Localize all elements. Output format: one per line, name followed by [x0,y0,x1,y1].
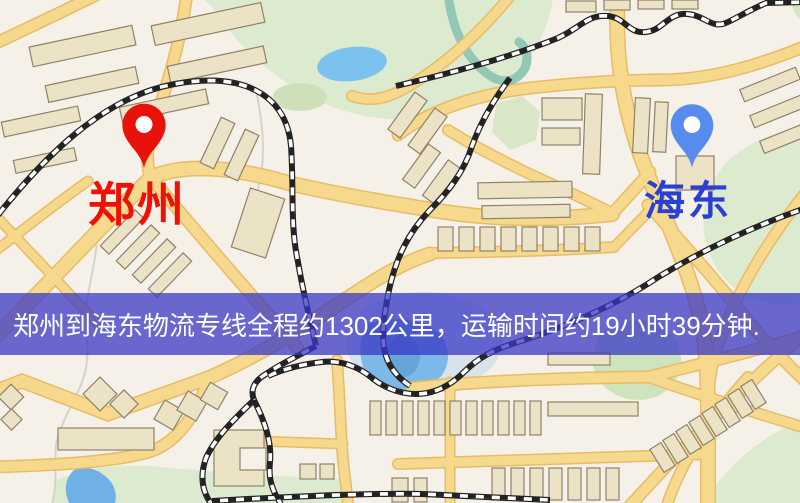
pin-hole [684,116,701,133]
origin-pin-icon [121,101,167,171]
pin-shape [122,104,165,168]
route-info-banner: 郑州到海东物流专线全程约1302公里，运输时间约19小时39分钟. [0,293,800,355]
map-screenshot: 郑州到海东物流专线全程约1302公里，运输时间约19小时39分钟. 郑州 海东 [0,0,800,503]
destination-city-label: 海东 [644,181,732,222]
pin-shape [671,104,714,167]
destination-pin-icon [668,102,716,170]
pin-hole [135,116,152,133]
map-canvas [0,0,800,503]
route-info-text: 郑州到海东物流专线全程约1302公里，运输时间约19小时39分钟. [0,306,760,343]
destination-pin[interactable] [668,102,716,170]
origin-pin[interactable] [121,101,167,171]
origin-city-label: 郑州 [88,183,186,230]
